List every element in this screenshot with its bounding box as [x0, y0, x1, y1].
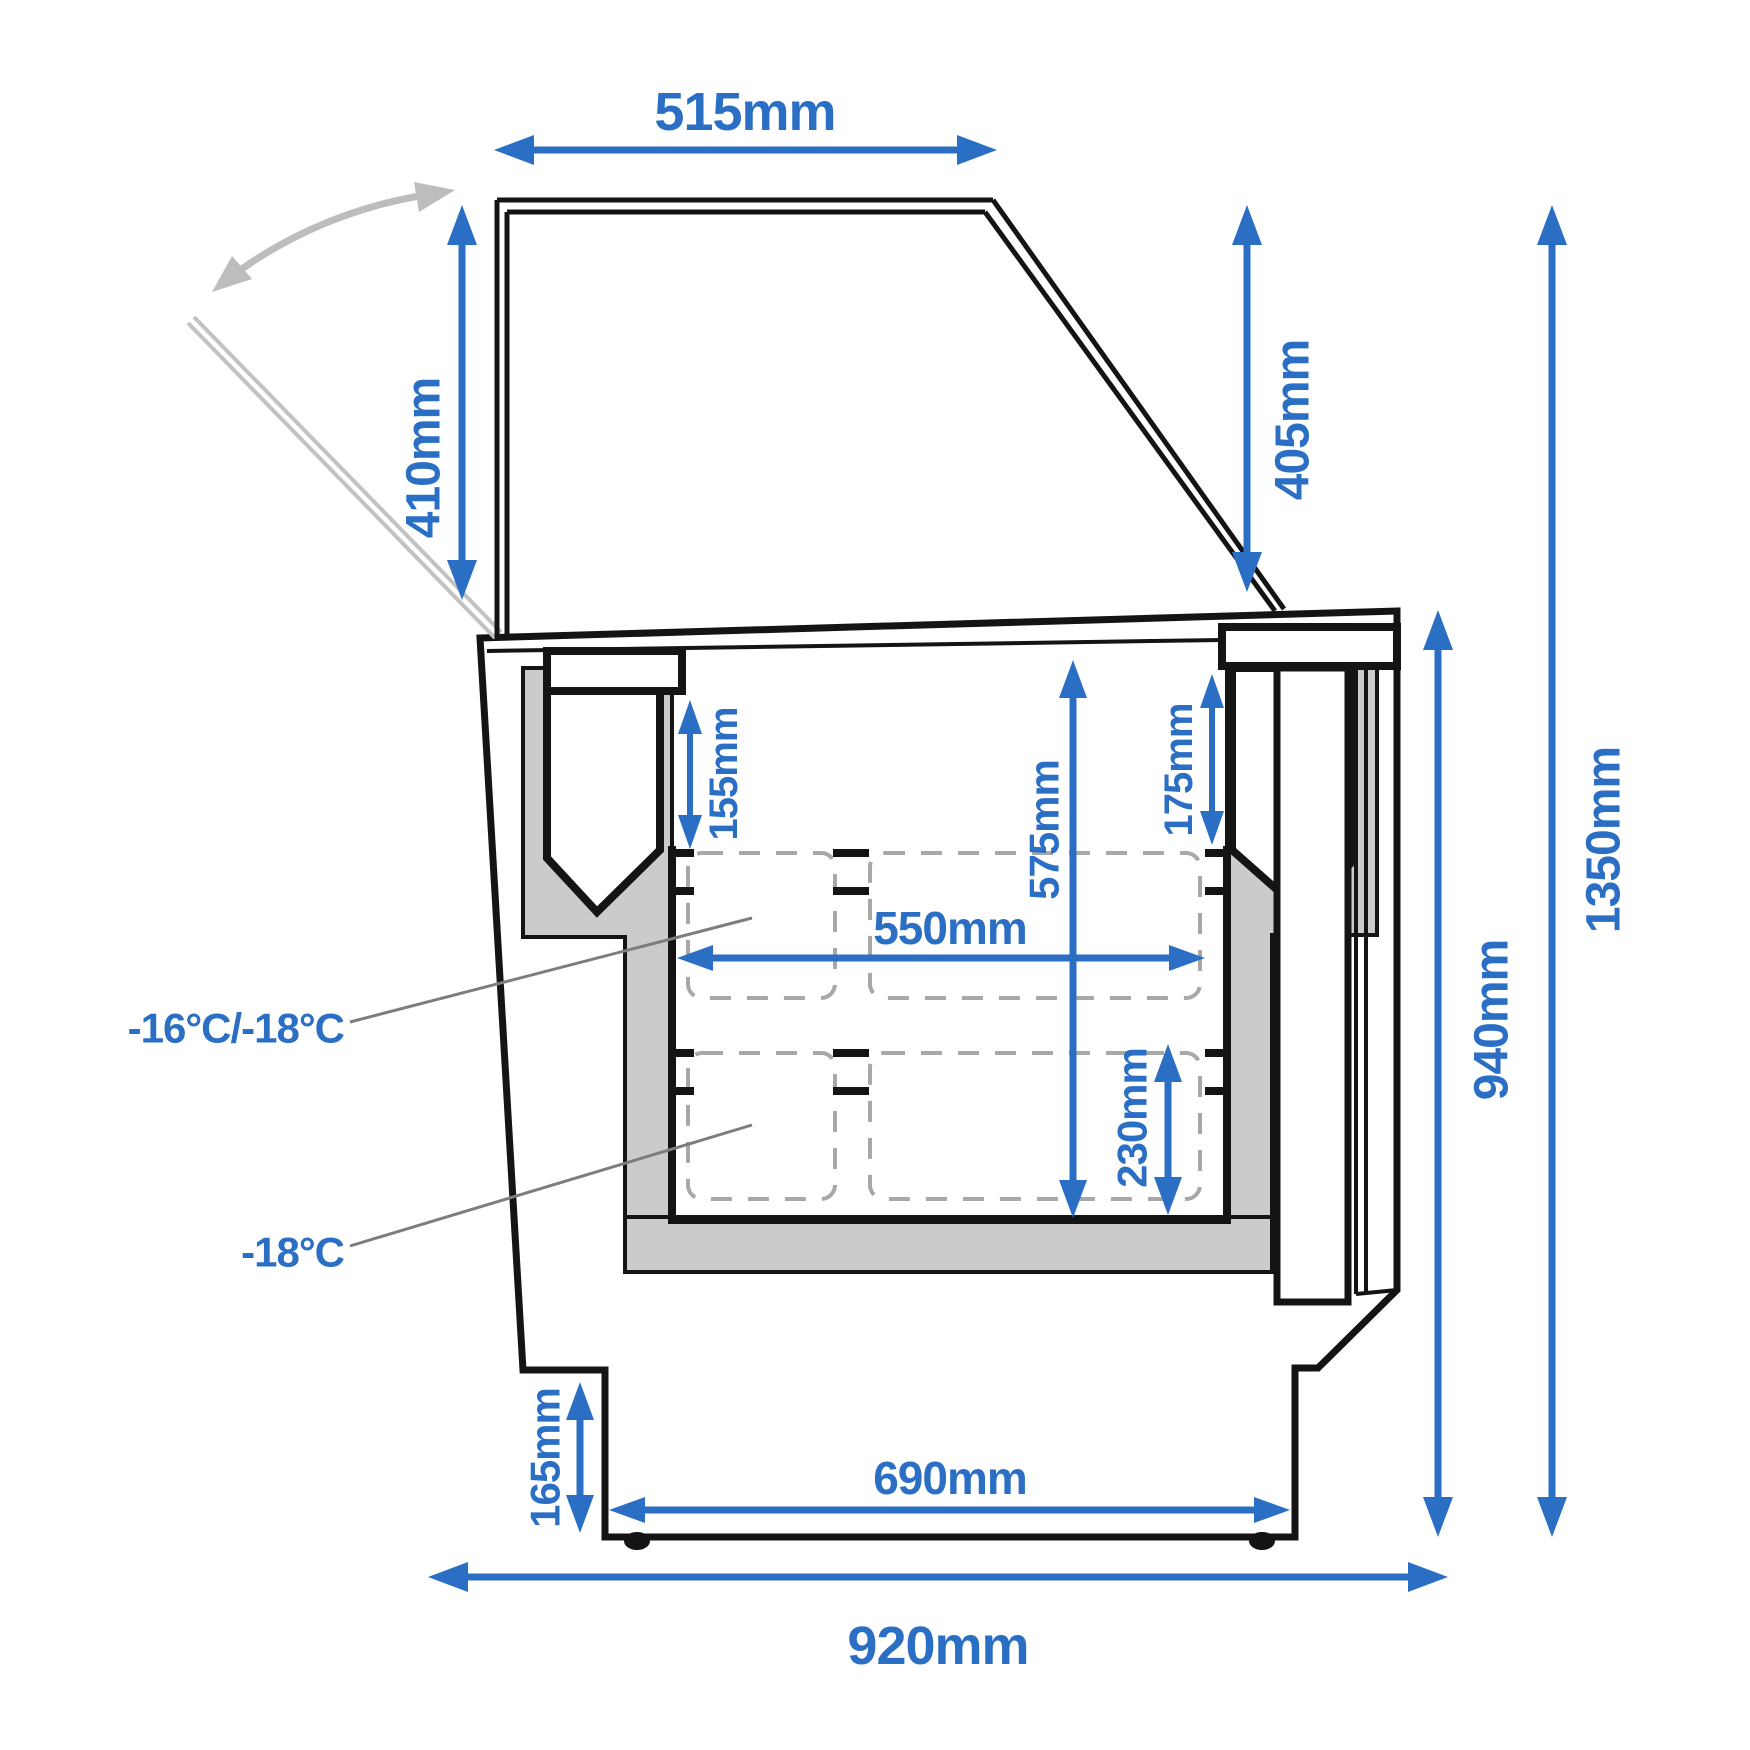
base-recess-height-label: 165mm	[522, 1388, 569, 1528]
lid-height-right-label: 405mm	[1267, 340, 1320, 500]
bottom-insulation	[625, 1217, 1272, 1272]
lid-closed-profile	[497, 200, 1284, 638]
inner-width-label: 550mm	[873, 902, 1027, 954]
lid-swing-arc	[224, 193, 440, 282]
body-height-label: 940mm	[1466, 940, 1519, 1100]
compressor-panel	[1277, 668, 1348, 1302]
right-lid-rest	[1222, 627, 1397, 666]
swing-arrowhead-bottom	[212, 256, 252, 292]
right-foot	[1249, 1532, 1275, 1550]
left-foot	[624, 1532, 650, 1550]
dimension-rim-to-basket-left: 155mm	[678, 700, 746, 849]
glass-lid	[188, 182, 1284, 638]
top-width-label: 515mm	[654, 82, 835, 142]
dimension-total-width: 920mm	[428, 1562, 1448, 1676]
dimension-lid-height-right: 405mm	[1232, 205, 1320, 592]
diagram-canvas: -16°C/-18°C -18°C 515mm 410mm 405mm 1350…	[0, 0, 1750, 1750]
total-width-label: 920mm	[847, 1616, 1028, 1676]
rim-to-basket-right-label: 175mm	[1157, 704, 1201, 837]
lower-zone-label: -18°C	[241, 1229, 344, 1276]
upper-zone-label: -16°C/-18°C	[128, 1005, 345, 1052]
open-lid-line-inner	[194, 317, 501, 632]
dimension-base-recess-height: 165mm	[522, 1382, 595, 1533]
freezer-dimension-diagram: -16°C/-18°C -18°C 515mm 410mm 405mm 1350…	[0, 0, 1750, 1750]
base-width-label: 690mm	[873, 1452, 1027, 1504]
dimension-total-height: 1350mm	[1537, 205, 1631, 1537]
dimension-body-height: 940mm	[1423, 610, 1519, 1537]
left-air-grille	[547, 651, 682, 691]
total-height-label: 1350mm	[1578, 747, 1631, 933]
lower-basket-depth-label: 230mm	[1109, 1048, 1156, 1188]
rim-to-basket-left-label: 155mm	[702, 708, 746, 841]
cabinet-body	[480, 611, 1397, 1550]
swing-arrowhead-top	[414, 182, 455, 212]
dimension-top-width: 515mm	[494, 82, 997, 165]
lid-height-left-label: 410mm	[398, 378, 451, 538]
inner-depth-label: 575mm	[1021, 760, 1068, 900]
